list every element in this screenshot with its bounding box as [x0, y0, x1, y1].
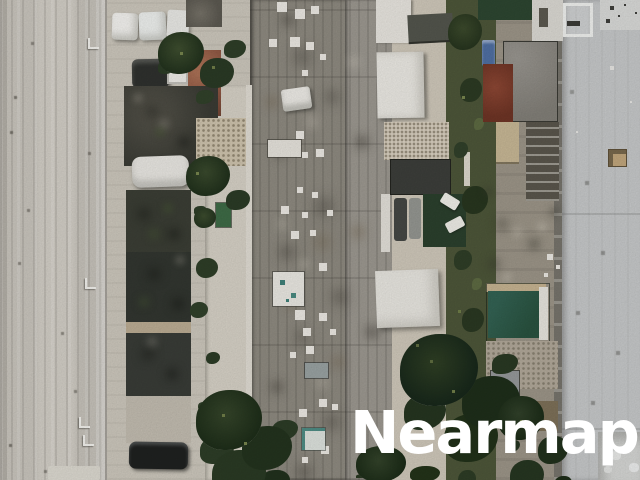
dark-roof-strip [407, 13, 453, 44]
dark-ground-patch [186, 0, 222, 27]
teal-rooftop-unit [302, 428, 325, 450]
nearmap-watermark: Nearmap [350, 403, 638, 462]
corner-shadow-mark [567, 21, 580, 26]
white-corner-structure [563, 3, 593, 37]
carport-roof [126, 333, 191, 396]
road-light-patch [48, 466, 100, 480]
gravel-roof [384, 122, 449, 160]
carport-roof [126, 190, 191, 252]
ribbed-metal-roof [526, 122, 559, 201]
dark-green-roof [478, 0, 533, 20]
green-shed [216, 203, 231, 227]
white-car [131, 155, 189, 188]
parking-corner-mark [83, 435, 94, 446]
white-deck [273, 272, 304, 306]
tan-addition-roof [496, 122, 519, 164]
charcoal-roof [391, 160, 450, 194]
foliage-highlights [0, 0, 3, 3]
parking-corner-mark [79, 417, 90, 428]
white-flat-roof [376, 52, 424, 119]
white-rooftop-hatch [268, 140, 301, 157]
building-shadow-mark [539, 8, 548, 27]
dark-car [394, 198, 407, 241]
white-flat-roof [376, 0, 411, 43]
carport-roof [126, 252, 191, 322]
white-flat-roof [375, 269, 440, 328]
white-rooftop-unit [281, 86, 313, 112]
white-car [139, 12, 167, 41]
warehouse-light-corner [600, 0, 640, 30]
dark-car [129, 441, 188, 469]
roof-tan-band [126, 322, 191, 333]
pool-enclosure-frame [486, 283, 550, 343]
roof-vent [609, 150, 626, 166]
driveway-gap [126, 396, 191, 443]
blue-tarp [482, 40, 495, 66]
white-car [112, 13, 139, 41]
roof-seam [562, 213, 640, 215]
road-edge-highlight [96, 0, 105, 480]
concrete-lane [381, 194, 390, 252]
red-roof [483, 64, 513, 122]
gray-car [409, 198, 421, 239]
parking-corner-mark [85, 278, 96, 289]
parking-corner-mark [88, 38, 99, 49]
gray-rooftop-unit [305, 363, 328, 378]
fence-lath [464, 152, 470, 186]
aerial-imagery-canvas[interactable]: Nearmap [0, 0, 640, 480]
